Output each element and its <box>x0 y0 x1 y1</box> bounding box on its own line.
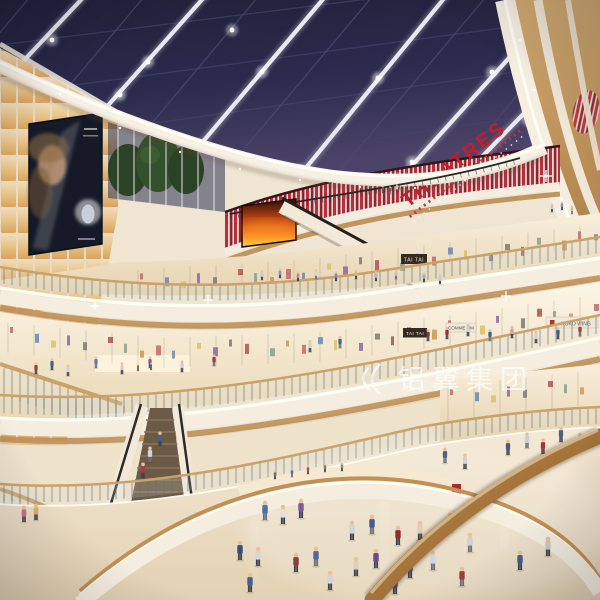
mall-scene: THEATRES TAI TAI COMME HM <box>0 0 600 600</box>
vignette <box>0 0 600 600</box>
mall-atrium-rendering: THEATRES TAI TAI COMME HM <box>0 0 600 600</box>
